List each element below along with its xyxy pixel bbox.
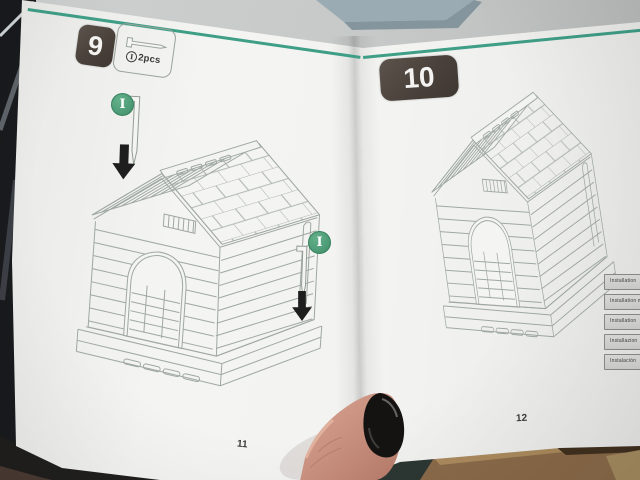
thumb-nail: [363, 393, 404, 457]
hand: [0, 0, 640, 480]
photo-of-instruction-manual: 9 I 2pcs I I 11 10 Installation: [0, 0, 640, 480]
